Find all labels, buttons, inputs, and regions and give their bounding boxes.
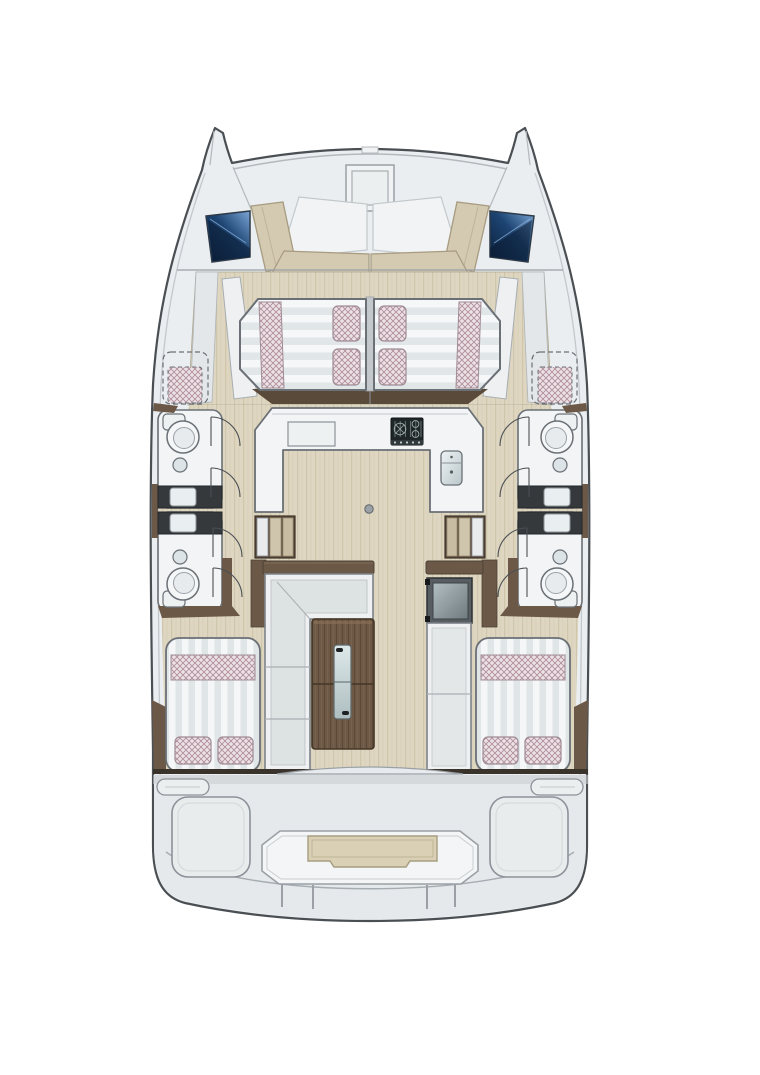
hull-wedge-starboard: [574, 700, 588, 772]
berth-runner-starboard: [456, 302, 481, 388]
bed-runner-checker: [481, 655, 565, 680]
hull-wedge-port: [152, 700, 166, 772]
hatch-outer: [172, 797, 250, 877]
pillow: [218, 737, 253, 764]
pillow: [333, 306, 360, 341]
hatch-outer: [490, 797, 568, 877]
step-tread: [257, 518, 268, 556]
bed-runner-checker: [171, 655, 255, 680]
engine-hatch-starboard: [490, 797, 568, 877]
deck-hatch-inner: [352, 171, 388, 205]
wardrobe-strip-starboard: [482, 560, 497, 627]
berth-divider: [366, 297, 374, 391]
saloon-table: [312, 619, 374, 749]
pillow: [175, 737, 211, 764]
pillow: [333, 349, 360, 385]
aft-bed-starboard: [476, 638, 570, 772]
mast-post-dot: [365, 505, 373, 513]
fridge-lid: [433, 583, 468, 619]
fridge-hinge: [425, 616, 430, 622]
step-tread: [459, 518, 470, 556]
sink-drain: [450, 470, 453, 473]
stove-knob: [412, 441, 414, 443]
stove-knob: [394, 441, 396, 443]
table-edge-highlight: [314, 621, 372, 624]
step-tread: [283, 518, 293, 556]
glass-latch: [342, 711, 349, 715]
step-tread: [447, 518, 457, 556]
lounge-bench-starboard: [371, 251, 469, 275]
engine-hatch-port: [172, 797, 250, 877]
stove-icon: [391, 418, 423, 445]
transom-shadow: [153, 775, 588, 784]
pillow: [483, 737, 518, 764]
pillow: [379, 349, 406, 385]
step-tread: [270, 518, 281, 556]
fridge-hinge: [425, 579, 430, 585]
companionway-steps-starboard: [445, 516, 485, 558]
glass-latch: [336, 648, 343, 652]
bench-cushion: [432, 628, 466, 766]
pillow: [525, 737, 561, 764]
catamaran-floor-plan: [0, 0, 760, 1075]
berth-runner-port: [259, 302, 284, 388]
lounge-bench-port: [271, 251, 369, 275]
companionway-steps-port: [255, 516, 295, 558]
cutting-board: [288, 422, 335, 446]
starboard-bench: [427, 623, 471, 771]
stern-handle-starboard: [531, 779, 583, 795]
fridge-unit: [425, 578, 472, 623]
hull-window-starboard: [490, 211, 534, 262]
sink-drain: [450, 456, 453, 459]
stove-knob: [418, 441, 420, 443]
stove-knob: [400, 441, 402, 443]
hull-window-port: [206, 211, 250, 262]
fridge-top-wood: [426, 561, 483, 574]
stove-knob: [406, 441, 408, 443]
aft-bed-port: [166, 638, 260, 772]
cushion-checker: [168, 367, 202, 403]
cushion-checker: [538, 367, 572, 403]
bow-center-notch: [362, 147, 378, 153]
stern-step-module: [262, 831, 478, 884]
galley-sink-icon: [441, 451, 462, 485]
stern-handle-port: [157, 779, 209, 795]
step-tread: [472, 518, 483, 556]
pillow: [379, 306, 406, 341]
floor-plan-page: [0, 0, 760, 1075]
